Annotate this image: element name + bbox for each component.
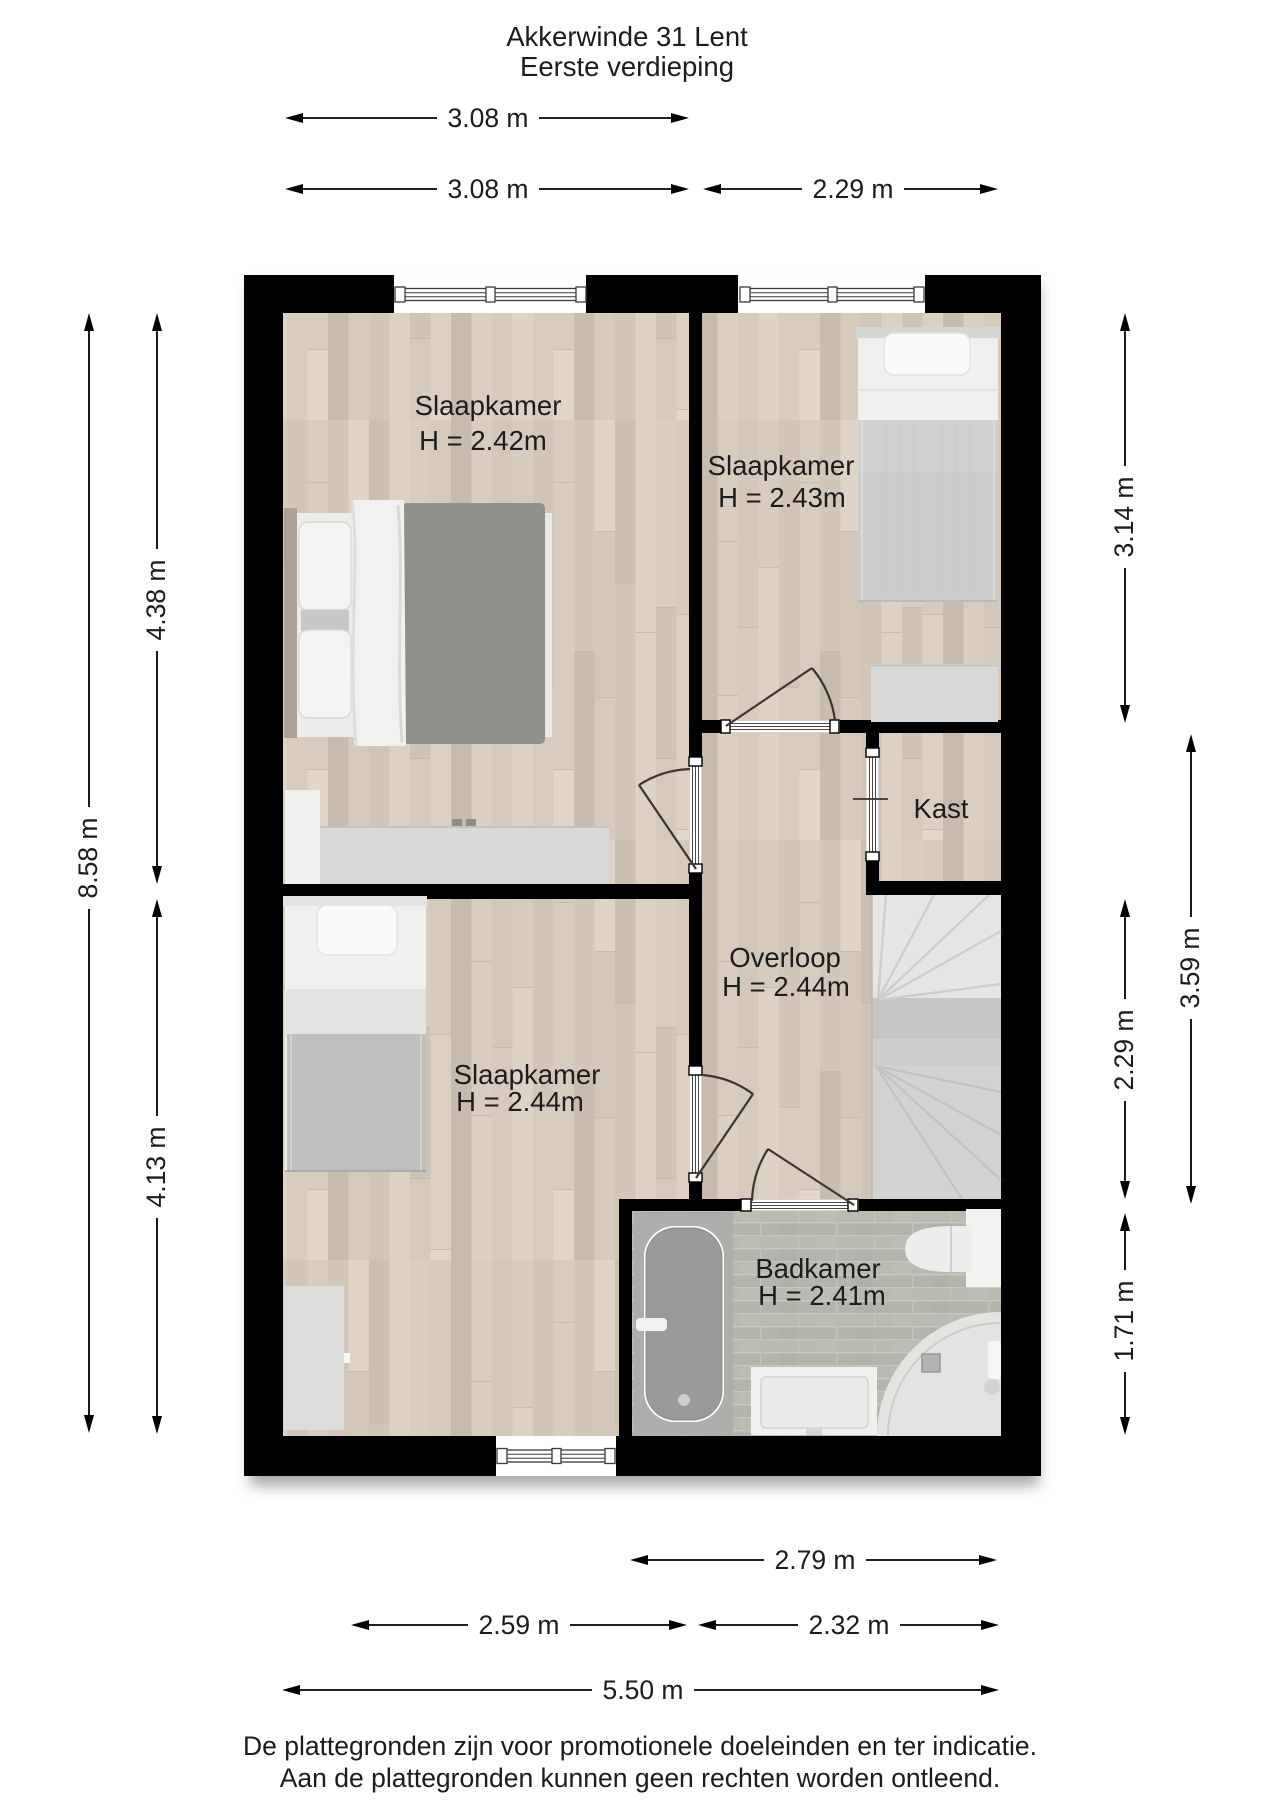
svg-text:5.50 m: 5.50 m — [602, 1675, 683, 1705]
svg-text:4.13 m: 4.13 m — [141, 1126, 171, 1207]
svg-text:De plattegronden zijn voor pro: De plattegronden zijn voor promotionele … — [243, 1731, 1037, 1761]
svg-text:3.08 m: 3.08 m — [447, 174, 528, 204]
svg-text:8.58 m: 8.58 m — [73, 817, 103, 898]
svg-text:H = 2.41m: H = 2.41m — [758, 1280, 886, 1311]
svg-text:H = 2.44m: H = 2.44m — [456, 1086, 584, 1117]
svg-text:Overloop: Overloop — [729, 942, 841, 973]
svg-text:Aan de plattegronden kunnen ge: Aan de plattegronden kunnen geen rechten… — [280, 1763, 1000, 1793]
svg-text:Kast: Kast — [913, 793, 968, 824]
svg-text:H = 2.42m: H = 2.42m — [419, 425, 547, 456]
svg-text:2.59 m: 2.59 m — [478, 1610, 559, 1640]
svg-text:4.38 m: 4.38 m — [141, 559, 171, 640]
svg-text:3.08 m: 3.08 m — [447, 103, 528, 133]
svg-text:H = 2.44m: H = 2.44m — [722, 971, 850, 1002]
svg-text:Eerste verdieping: Eerste verdieping — [520, 51, 734, 82]
svg-text:3.59 m: 3.59 m — [1175, 927, 1205, 1008]
svg-text:3.14 m: 3.14 m — [1109, 476, 1139, 557]
svg-text:1.71 m: 1.71 m — [1109, 1280, 1139, 1361]
svg-text:2.29 m: 2.29 m — [812, 174, 893, 204]
svg-text:2.32 m: 2.32 m — [808, 1610, 889, 1640]
svg-text:2.79 m: 2.79 m — [774, 1545, 855, 1575]
svg-text:H = 2.43m: H = 2.43m — [718, 482, 846, 513]
svg-text:Slaapkamer: Slaapkamer — [708, 450, 855, 481]
svg-text:Akkerwinde 31 Lent: Akkerwinde 31 Lent — [506, 21, 748, 52]
svg-text:2.29 m: 2.29 m — [1109, 1009, 1139, 1090]
svg-text:Slaapkamer: Slaapkamer — [415, 390, 562, 421]
